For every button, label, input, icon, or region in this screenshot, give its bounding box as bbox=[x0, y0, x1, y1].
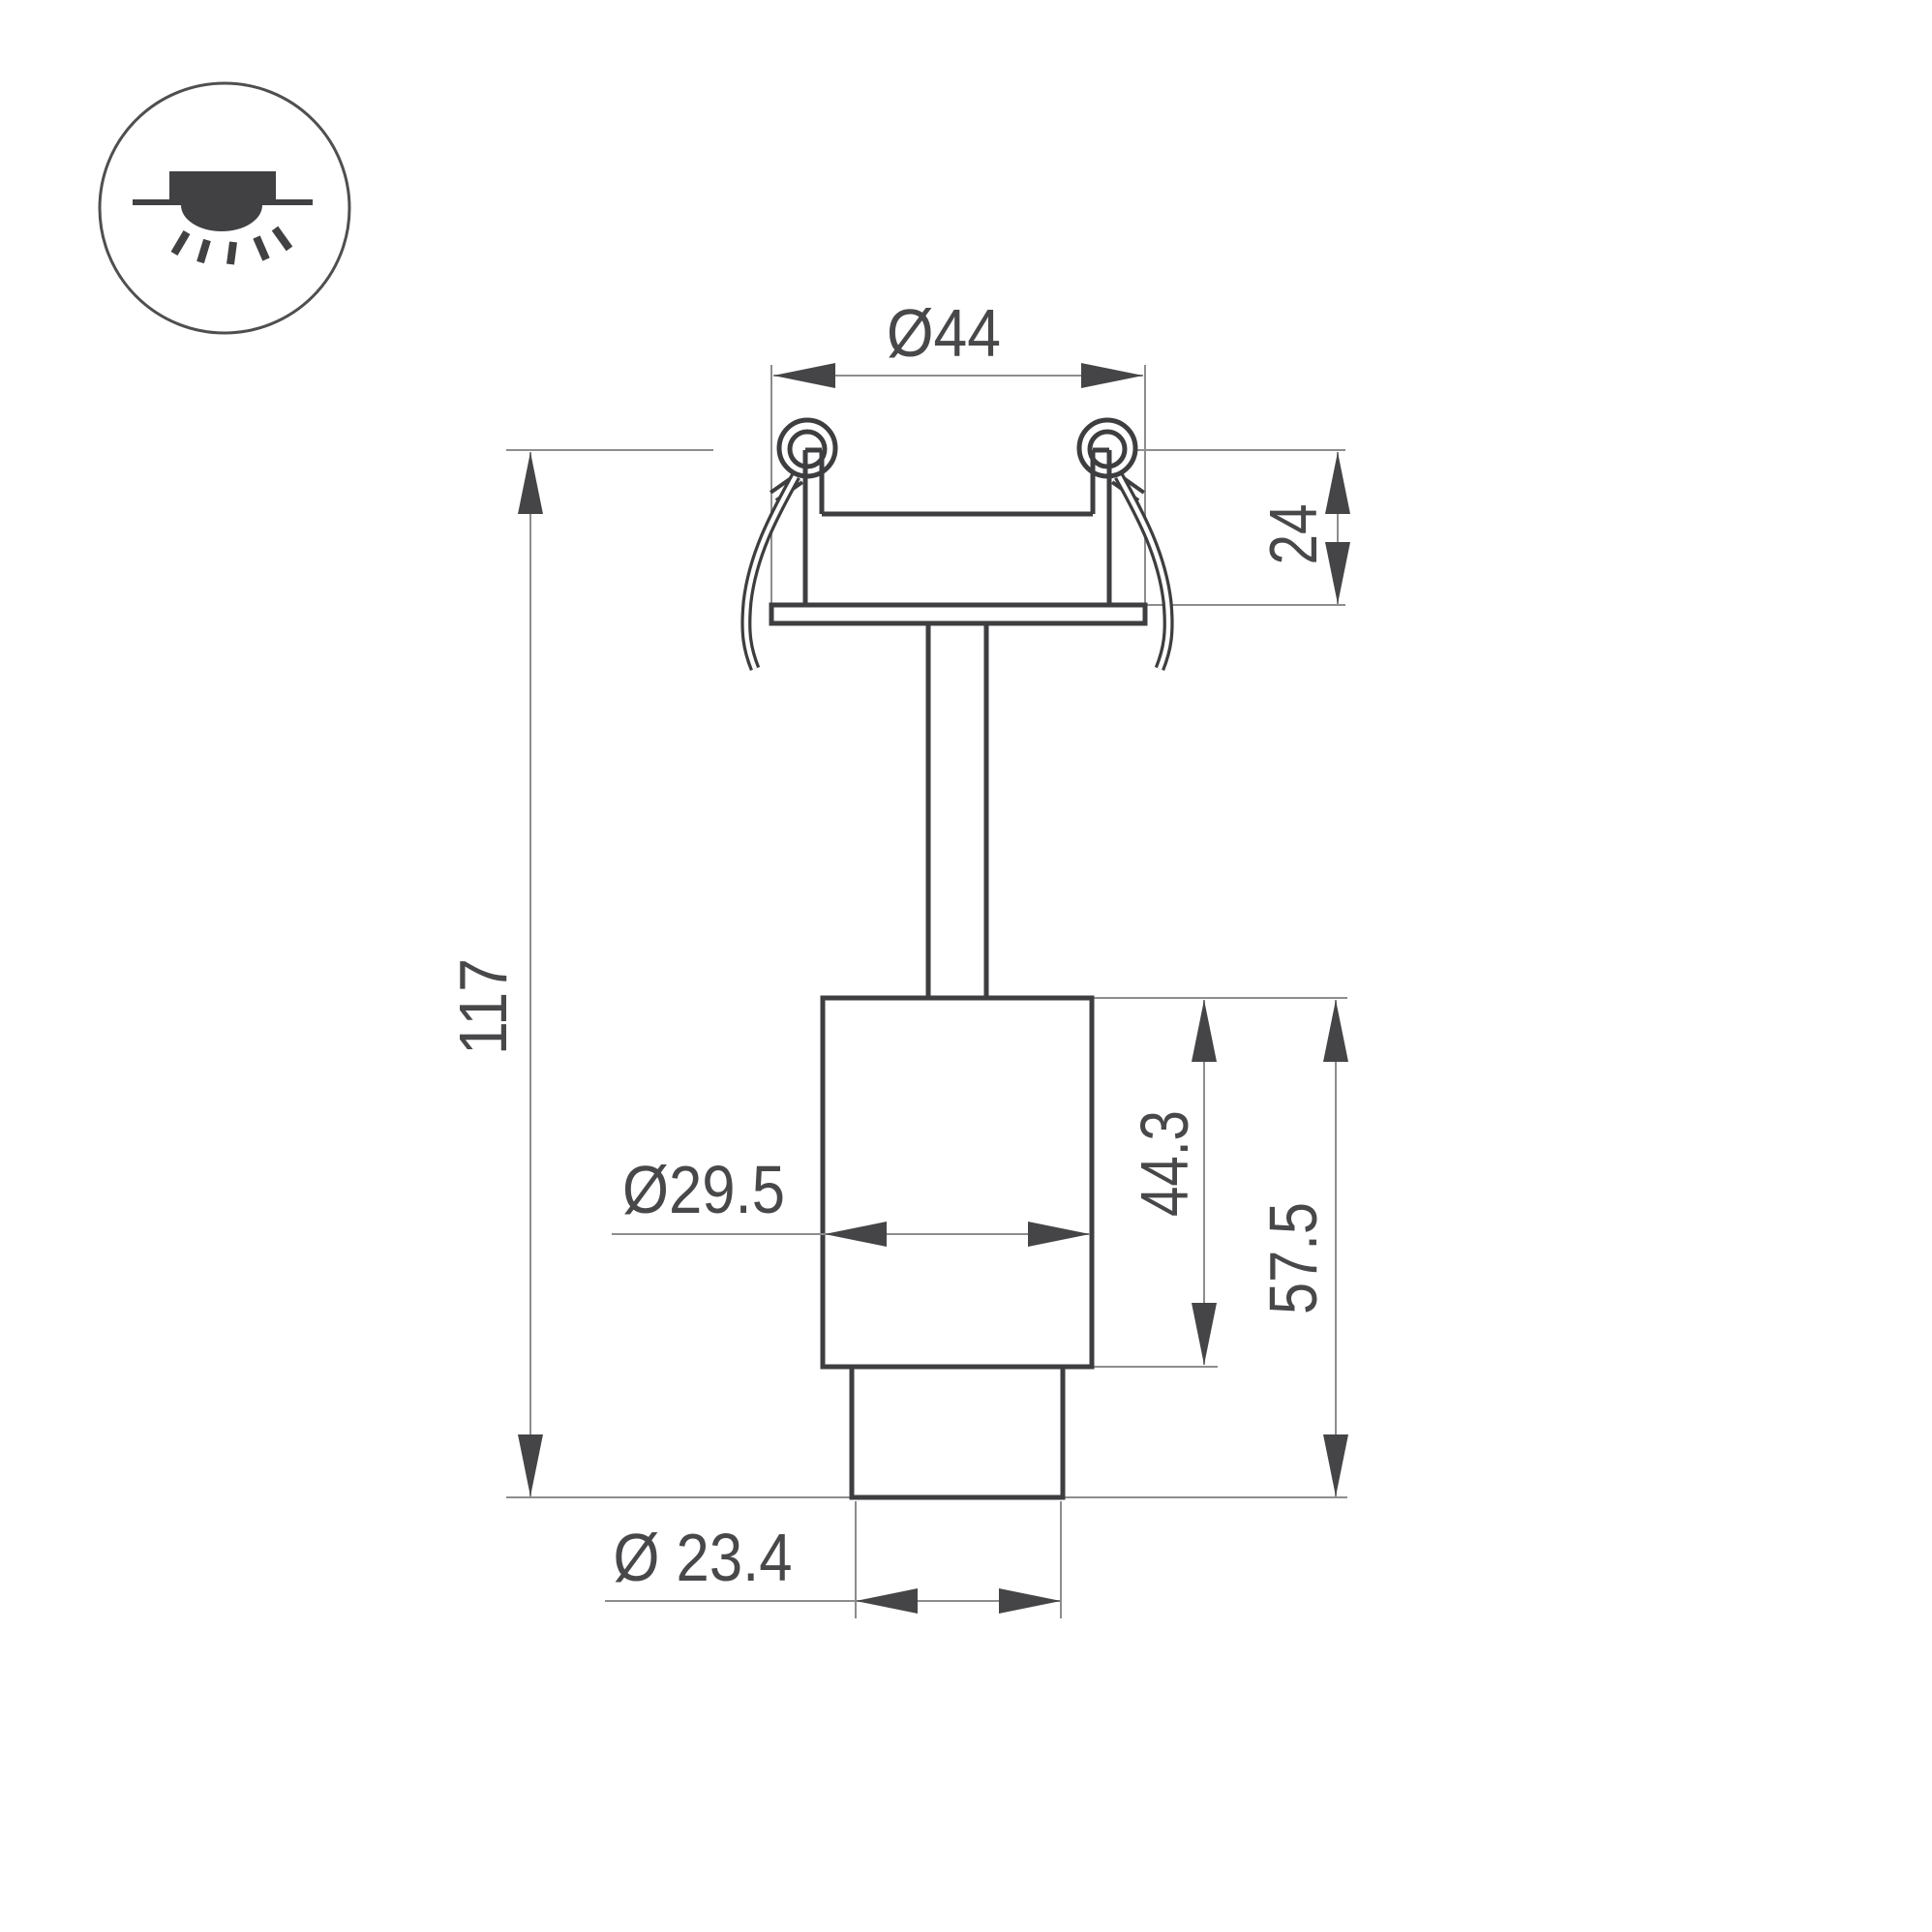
arrow-right bbox=[1081, 363, 1143, 388]
lamp-tip bbox=[852, 1367, 1063, 1497]
dimension-body-height: 44.3 bbox=[1127, 1000, 1217, 1365]
label-tip-diameter: Ø 23.4 bbox=[614, 1520, 793, 1595]
dimension-lower-height: 57.5 bbox=[1255, 1000, 1348, 1496]
arrow-down bbox=[518, 1434, 543, 1496]
label-recess-depth: 24 bbox=[1255, 504, 1331, 565]
dimension-tip-diameter: Ø 23.4 bbox=[605, 1520, 1061, 1614]
arrow-up bbox=[1323, 1000, 1348, 1062]
dimension-recess-depth: 24 bbox=[1255, 452, 1350, 604]
label-lower-height: 57.5 bbox=[1255, 1202, 1331, 1314]
arrow-up bbox=[518, 452, 543, 514]
label-total-height: 117 bbox=[445, 958, 521, 1055]
label-top-diameter: Ø44 bbox=[887, 295, 1001, 371]
arrow-right bbox=[999, 1588, 1061, 1614]
luminaire-outline bbox=[746, 420, 1168, 1497]
arrow-left bbox=[856, 1588, 918, 1614]
trim-housing bbox=[805, 450, 1109, 604]
arrow-up bbox=[1192, 1000, 1217, 1062]
drawing-canvas: Ø44 24 117 Ø29.5 44.3 bbox=[0, 0, 1932, 1932]
trim-flange bbox=[771, 605, 1145, 623]
icon-ceiling-line bbox=[133, 199, 313, 205]
arrow-down bbox=[1323, 1434, 1348, 1496]
technical-drawing: Ø44 24 117 Ø29.5 44.3 bbox=[0, 0, 1932, 1932]
lamp-body bbox=[823, 998, 1092, 1367]
label-body-diameter: Ø29.5 bbox=[622, 1152, 785, 1227]
stem bbox=[928, 623, 986, 998]
dimension-total-height: 117 bbox=[445, 452, 543, 1496]
label-body-height: 44.3 bbox=[1127, 1110, 1202, 1217]
dimension-top-diameter: Ø44 bbox=[773, 295, 1143, 388]
icon-lamp-body bbox=[169, 171, 276, 201]
arrow-left bbox=[773, 363, 835, 388]
arrow-down bbox=[1192, 1303, 1217, 1365]
recessed-downlight-icon bbox=[100, 83, 349, 333]
